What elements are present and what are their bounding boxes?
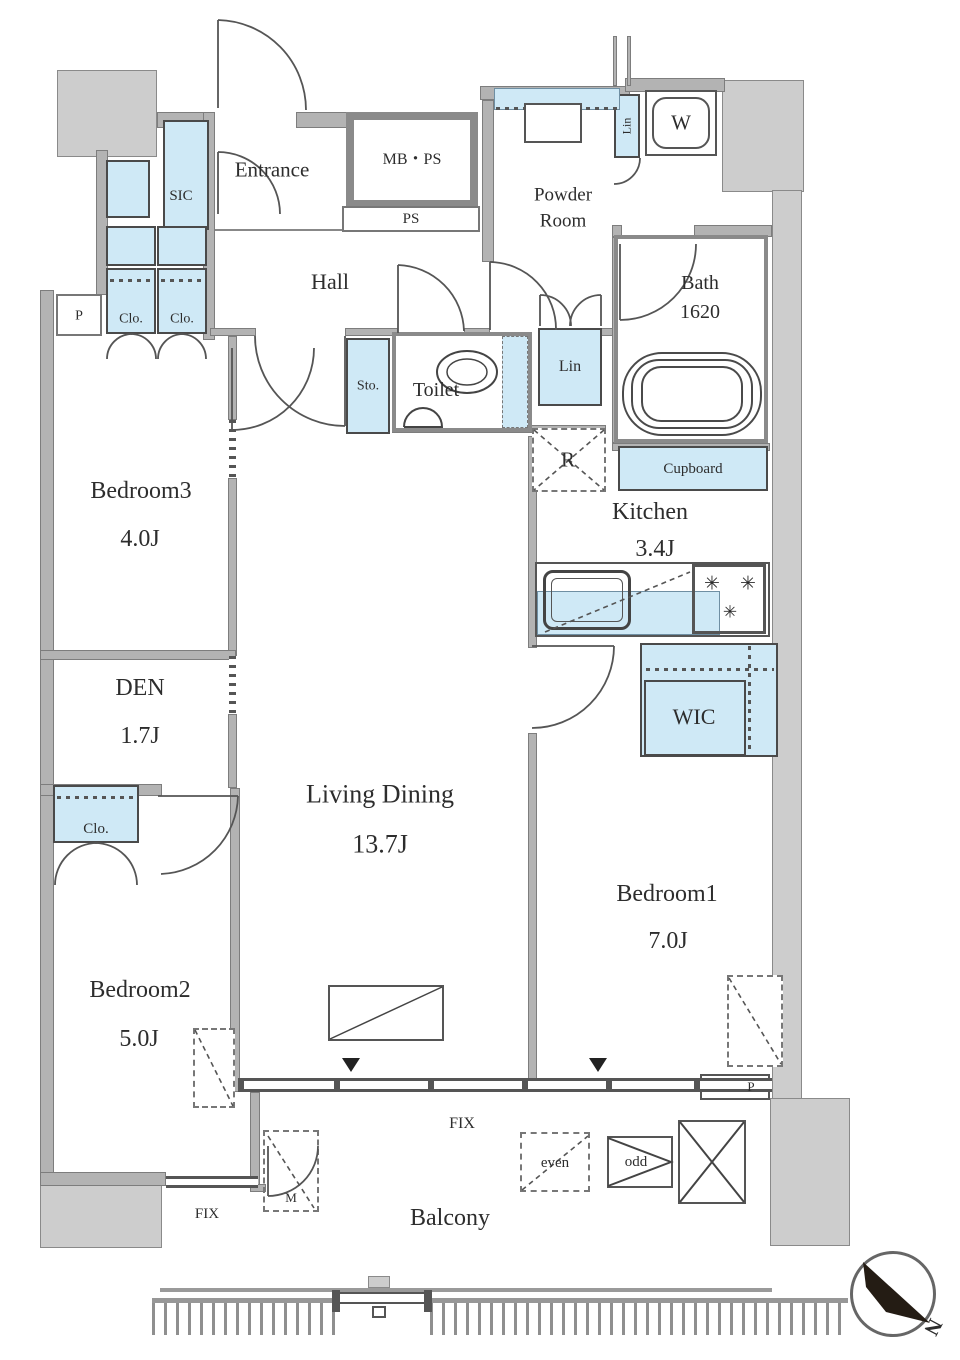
common-area-block — [40, 1185, 162, 1248]
room-label-powder-1: Powder — [534, 186, 592, 207]
toilet-counter — [502, 336, 528, 428]
gate-post — [332, 1290, 340, 1312]
room-label-bedroom3: Bedroom3 — [90, 478, 191, 504]
room-size-den: 1.7J — [120, 723, 159, 749]
door-arc — [158, 334, 183, 359]
fixture-label-ps: PS — [403, 211, 420, 228]
door-arc — [131, 334, 156, 359]
room-label-wic: WIC — [673, 705, 716, 729]
fixture-label-lin-upper: Lin — [620, 118, 633, 135]
futon-space-bedroom1 — [727, 975, 783, 1067]
fixture-label-clo-a: Clo. — [119, 311, 143, 326]
wall — [345, 328, 398, 336]
wic-rail — [646, 668, 774, 671]
wall — [210, 328, 256, 336]
gate-post — [424, 1290, 432, 1312]
burner-icon: ✳ — [740, 575, 756, 596]
common-area-block — [770, 1098, 850, 1246]
kitchen-sink-inner — [551, 578, 623, 622]
room-label-bedroom1: Bedroom1 — [616, 881, 717, 907]
common-area-block — [722, 80, 804, 192]
burner-icon: ✳ — [723, 604, 737, 623]
compass-north-label: N — [919, 1315, 947, 1339]
room-label-powder-2: Room — [540, 212, 586, 233]
wall-break — [627, 36, 631, 86]
room-size-bedroom3: 4.0J — [120, 526, 159, 552]
closet-rail — [57, 796, 135, 799]
futon-space-bedroom2 — [193, 1028, 235, 1108]
sic-cabinet — [163, 120, 209, 230]
wall-break — [613, 36, 617, 86]
room-label-hall: Hall — [311, 270, 349, 294]
room-size-kitchen: 3.4J — [635, 536, 674, 562]
gate-latch — [372, 1306, 386, 1318]
fixture-label-fridge: R — [561, 448, 575, 471]
window-marker — [589, 1058, 607, 1072]
room-size-bedroom2: 5.0J — [119, 1026, 158, 1052]
window-label-fix-main: FIX — [449, 1115, 475, 1133]
balcony-slab-edge — [160, 1288, 772, 1292]
fixture-label-pipe-left: P — [75, 308, 83, 323]
room-size-bedroom1: 7.0J — [648, 928, 687, 954]
sliding-door-marks — [229, 656, 236, 714]
door-arc — [218, 20, 306, 110]
door-arc — [95, 843, 137, 885]
sliding-door-marks — [229, 420, 236, 478]
window-post — [522, 1078, 528, 1092]
fixture-label-odd: odd — [625, 1154, 648, 1171]
room-label-bedroom2: Bedroom2 — [89, 977, 190, 1003]
wall — [228, 714, 237, 788]
window-post — [428, 1078, 434, 1092]
door-arc — [161, 796, 238, 874]
fixture-label-pipe-right: P — [747, 1080, 754, 1094]
room-label-living-dining: Living Dining — [306, 781, 454, 810]
floor-plan: ✳ ✳ ✳ — [0, 0, 960, 1360]
door-arc — [532, 646, 614, 728]
ld-counter — [328, 985, 444, 1041]
window-post — [238, 1078, 244, 1092]
wall — [528, 733, 537, 1085]
room-label-toilet: Toilet — [413, 379, 459, 401]
wic-rail-vertical — [748, 646, 751, 754]
shoe-box — [106, 226, 156, 266]
common-area-block — [57, 70, 157, 157]
window-marker — [342, 1058, 360, 1072]
fixture-label-cupboard: Cupboard — [663, 461, 722, 478]
closet-rail — [110, 279, 153, 282]
entrance-step-line — [215, 229, 345, 231]
door-arc — [232, 348, 314, 430]
fixture-label-mb-ps: MB・PS — [383, 151, 442, 169]
door-arc — [255, 336, 345, 426]
window-label-fix-side: FIX — [195, 1206, 219, 1223]
balcony-railing — [152, 1298, 336, 1335]
fixture-label-even: even — [541, 1155, 569, 1172]
room-label-balcony: Balcony — [410, 1205, 490, 1231]
burner-icon: ✳ — [704, 575, 720, 596]
door-arc — [107, 334, 132, 359]
fixture-label-meter: M — [285, 1191, 297, 1205]
door-arc — [490, 262, 556, 330]
room-size-living-dining: 13.7J — [352, 831, 408, 860]
door-arc — [540, 295, 571, 326]
wall — [482, 100, 494, 262]
shoe-box — [157, 226, 207, 266]
fixture-label-lin-lower: Lin — [559, 358, 581, 376]
door-arc — [55, 843, 97, 885]
balcony-gate-box — [368, 1276, 390, 1288]
room-size-bath: 1620 — [680, 301, 720, 323]
fixture-label-sto: Sto. — [357, 378, 379, 393]
window-fix-main — [238, 1078, 772, 1092]
bathtub-inner — [641, 366, 743, 422]
room-label-den: DEN — [115, 675, 164, 701]
fixture-label-sic: SIC — [169, 188, 192, 205]
sic-cabinet-small — [106, 160, 150, 218]
evacuation-hatch — [678, 1120, 746, 1204]
balcony-railing — [430, 1298, 848, 1335]
wall — [40, 1172, 166, 1186]
room-label-bath: Bath — [681, 272, 719, 294]
window-post — [694, 1078, 700, 1092]
fixture-label-washer: W — [671, 111, 691, 134]
wall — [296, 112, 348, 128]
window-fix-side — [166, 1176, 258, 1188]
door-arc — [570, 295, 601, 326]
room-label-kitchen: Kitchen — [612, 499, 688, 525]
room-label-entrance: Entrance — [235, 158, 310, 181]
window-post — [606, 1078, 612, 1092]
window-post — [334, 1078, 340, 1092]
fixture-label-clo-bedroom2: Clo. — [83, 821, 108, 838]
balcony-gate — [336, 1292, 430, 1304]
fixture-label-clo-b: Clo. — [170, 311, 194, 326]
wall — [228, 478, 237, 656]
wall — [40, 290, 54, 1174]
door-arc — [398, 265, 464, 331]
door-arc — [614, 158, 640, 184]
wash-basin — [524, 103, 582, 143]
closet-rail — [161, 279, 204, 282]
wall — [40, 650, 236, 660]
wall — [228, 336, 237, 420]
